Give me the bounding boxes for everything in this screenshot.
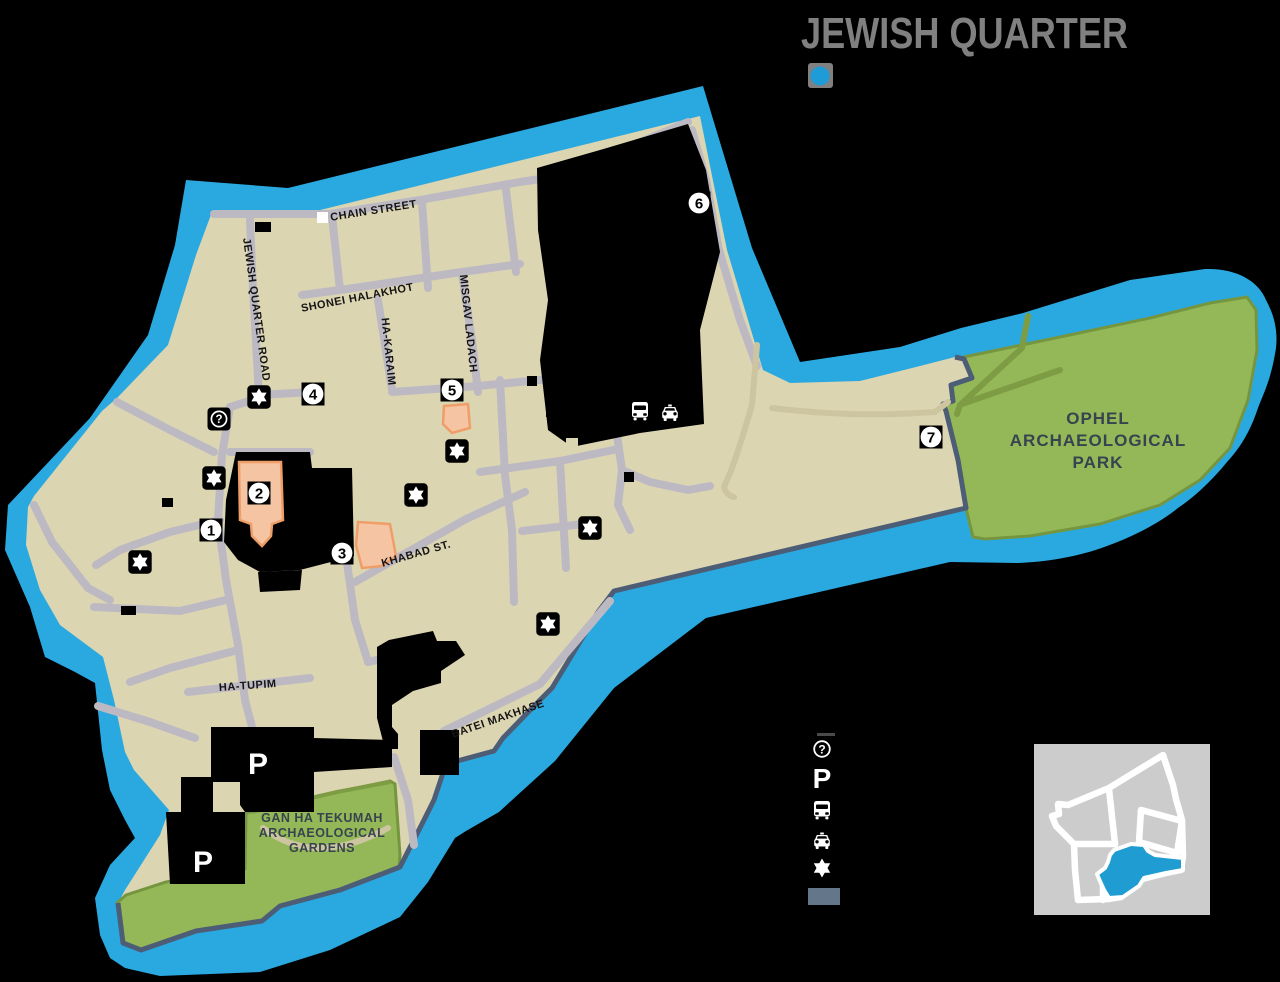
svg-text:4: 4 [309,387,318,404]
svg-text:ARCHAEOLOGICAL: ARCHAEOLOGICAL [259,826,385,840]
svg-text:ARCHAEOLOGICAL: ARCHAEOLOGICAL [1010,431,1186,450]
svg-text:P: P [193,846,213,879]
svg-text:1: 1 [207,523,215,540]
svg-text:2: 2 [255,486,263,503]
svg-text:7: 7 [927,430,935,447]
svg-text:GAN HA TEKUMAH: GAN HA TEKUMAH [261,811,383,825]
svg-text:GARDENS: GARDENS [289,841,355,855]
svg-text:?: ? [818,743,825,757]
svg-text:P: P [248,748,268,781]
svg-text:PARK: PARK [1073,453,1124,472]
svg-text:3: 3 [338,546,346,563]
svg-text:5: 5 [448,383,456,400]
svg-text:P: P [813,763,832,794]
svg-text:JEWISH QUARTER: JEWISH QUARTER [801,9,1128,58]
svg-text:6: 6 [695,196,703,213]
svg-text:OPHEL: OPHEL [1066,409,1130,428]
